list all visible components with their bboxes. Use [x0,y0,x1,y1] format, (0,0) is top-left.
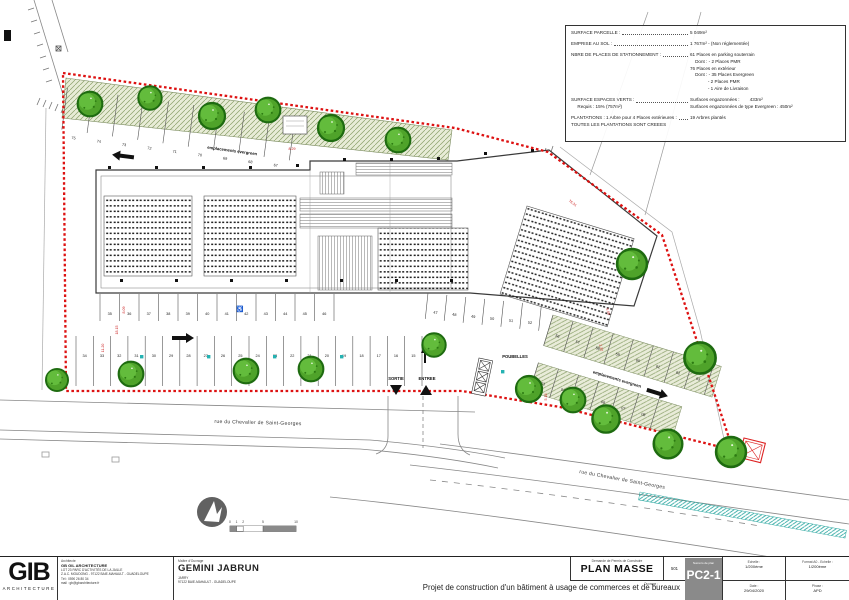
scale-value: 1/200ème [723,564,785,569]
parking-space-number: 20 [325,354,329,358]
info-row: Dont : - 2 Places PMR [571,59,840,66]
info-row: SURFACE ESPACES VERTS :Surfaces engazonn… [571,97,840,104]
parking-space-number: 52 [528,321,533,325]
parking-space-number: 47 [433,311,438,315]
phase-cell: Phase : APD [785,581,849,600]
roof-louver-a [300,198,452,211]
info-row: Dont : - 35 Places Evergreen [571,72,840,79]
plan-number: PC2-1 [685,568,722,582]
parking-space-number: 69 [223,156,228,161]
parking-space-number: 33 [100,354,104,358]
owner-name: GEMINI JABRUN [178,563,296,574]
stair-core [320,172,344,194]
info-row: 76 Places en extérieur [571,66,840,73]
roof-panel-grid-3 [378,228,468,290]
plan-number-cell: Numéro de plan PC2-1 [685,558,722,600]
parking-space-number: 18 [359,354,363,358]
parking-space-number: 73 [122,143,127,148]
parking-space-number: 35 [108,312,112,316]
svg-text:2: 2 [242,520,244,524]
survey-road-top-left [28,0,68,113]
drawing-title: PLAN MASSE [571,563,663,575]
phase-value: APD [786,588,849,593]
plan-number-label: Numéro de plan [685,561,722,565]
sortie-label: SORTIE [388,376,404,381]
parking-divider [444,295,447,321]
info-row: TOUTES LES PLANTATIONS SONT CREEES [571,122,840,129]
parking-space-number: 31 [134,354,138,358]
parking-space-number: 32 [117,354,121,358]
scale-cell: Echelle : 1/200ème [722,557,785,581]
title-block: GIB ARCHITECTURE Architecte GB GIL ARCHI… [0,556,849,600]
svg-text:18.15: 18.15 [115,326,119,335]
streets [0,396,849,560]
parking-space-number: 48 [452,313,457,317]
north-arrow-icon [197,497,227,527]
parking-space-number: 72 [147,146,152,151]
parking-space-number: 51 [509,319,514,323]
architect-cell: Architecte GB GIL ARCHITECTURE LOT 23 PA… [57,557,173,600]
parking-space-number: 41 [225,312,229,316]
parking-space-number: 71 [172,150,177,155]
logo-subtext: ARCHITECTURE [2,586,56,591]
date-value: 29/04/2020 [723,588,785,593]
parking-divider [425,293,428,319]
parking-space-number: 30 [152,354,156,358]
parking-divider [482,299,485,325]
parking-divider [520,303,523,329]
date-cell: Date : 29/04/2020 [722,581,785,600]
format-value: 1/200ème [786,564,849,569]
parking-space-number: 75 [71,136,76,141]
roof-panel-grid-2 [204,196,296,276]
parking-space-number: 37 [147,312,151,316]
format-cell: Format A0 - Echelle : 1/200ème [785,557,849,581]
drawing-title-cell: Demande de Permis de Construire PLAN MAS… [570,557,663,581]
roof-louver-top [356,163,452,175]
parking-space-number: 36 [127,312,131,316]
info-row: - 2 Places PMR [571,79,840,86]
project-description-cell: Projet de construction d'un bâtiment à u… [240,583,680,599]
scale-bar: 0 1 2 5 10 [229,520,298,532]
info-row: SURFACE PARCELLE :5 049m² [571,30,840,37]
poubelles-label: POUBELLES [502,354,528,359]
info-box-rows: SURFACE PARCELLE :5 049m²EMPRISE AU SOL … [571,30,840,129]
info-row: PLANTATIONS : 1 Arbre pour 4 Places exté… [571,115,840,122]
utility-box [283,116,307,134]
info-row: Requis : 15% (757m²)Surfaces engazonnées… [571,104,840,111]
parking-space-number: 50 [490,317,495,321]
street-label-horizontal: rue du Chevalier de Saint-Georges [214,419,301,427]
svg-text:5.16: 5.16 [544,394,548,401]
verge-strip [639,492,847,538]
roof-panel-grid-1 [104,196,192,276]
parking-space-number: 43 [264,312,268,316]
roof-louver-b [300,214,452,228]
logo-text: GIB [2,558,56,586]
parking-space-number: 74 [96,139,101,144]
parking-space-number: 17 [377,354,381,358]
parking-space-number: 46 [322,312,326,316]
parking-space-number: 45 [303,312,307,316]
parking-space-number: 25 [238,354,242,358]
svg-text:11.20: 11.20 [101,344,105,353]
parking-row-mid: 353637383940414243444546 [100,294,334,321]
svg-text:0: 0 [229,520,231,524]
parking-space-number: 22 [290,354,294,358]
parking-space-number: 68 [248,160,253,165]
info-row: - 1 Aire de Livraison [571,86,840,93]
legend-info-box: SURFACE PARCELLE :5 049m²EMPRISE AU SOL … [565,25,846,142]
info-row: EMPRISE AU SOL :1 767m² - (Non réglement… [571,41,840,48]
site-plan-sheet: 757473727170696867 emplacements evergree… [0,0,849,600]
evergreen-top-label: emplacements evergreen [207,145,258,157]
parking-space-number: 49 [471,315,476,319]
parking-space-number: 15 [411,354,415,358]
architect-email: mail : gb@gbarchitecture.fr [61,581,170,585]
parking-space-number: 34 [83,354,87,358]
west-kerb-line [42,108,46,390]
entree-label: ENTREE [419,376,436,381]
parking-space-number: 44 [283,312,287,316]
parking-space-number: 42 [244,312,248,316]
svg-text:8.29: 8.29 [289,147,296,151]
parking-space-number: 24 [256,354,260,358]
svg-text:1: 1 [236,520,238,524]
parking-divider [463,297,466,323]
parking-space-number: 26 [221,354,225,358]
project-description: Projet de construction d'un bâtiment à u… [423,583,680,592]
parking-space-number: 28 [186,354,190,358]
parking-space-number: 40 [205,312,209,316]
info-row: NBRE DE PLACES DE STATIONNEMENT :61 Plac… [571,52,840,59]
parking-space-number: 38 [166,312,170,316]
accessible-parking-icon: ♿ [236,305,244,313]
svg-text:8.09: 8.09 [122,307,126,314]
parking-space-number: 29 [169,354,173,358]
svg-text:10: 10 [294,520,298,524]
bin-storage [472,358,493,396]
roof-ramp-hatch [318,236,372,290]
parking-space-number: 70 [198,153,203,158]
parking-space-number: 39 [186,312,190,316]
drawing-index-cell: 501 [663,557,685,581]
parking-space-number: 67 [273,163,278,168]
parking-divider [501,301,504,327]
svg-text:5: 5 [262,520,264,524]
architect-logo: GIB ARCHITECTURE [2,558,56,600]
parking-divider [539,305,542,331]
margin-mark [4,30,11,41]
parking-space-number: 16 [394,354,398,358]
